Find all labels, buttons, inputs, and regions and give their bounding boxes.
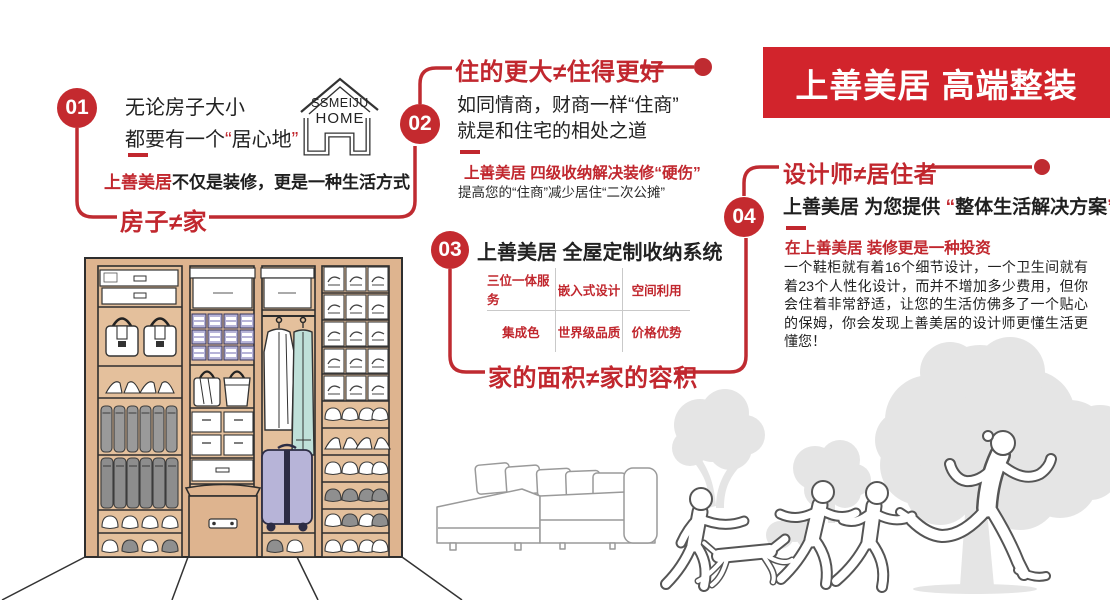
s1-red-dash — [128, 153, 148, 157]
step-number: 01 — [65, 96, 88, 120]
grid-cell: 世界级品质 — [555, 310, 623, 352]
s1-tagline: 上善美居不仅是装修，更是一种生活方式 — [104, 168, 410, 193]
logo-line2: HOME — [316, 110, 365, 127]
logo-line1: SSMEIJU — [311, 96, 369, 110]
s2-heading: 住的更大≠住得更好 — [455, 52, 665, 87]
s4-red-dash — [786, 226, 806, 230]
s2-line1: 如同情商，财商一样“住商” — [457, 93, 679, 119]
step-circle-01: 01 — [57, 88, 97, 128]
grid-cell: 价格优势 — [622, 310, 690, 352]
open-quote: “ — [225, 129, 232, 151]
s4-intro: 上善美居 为您提供 “整体生活解决方案” — [783, 192, 1110, 219]
step-circle-03: 03 — [431, 231, 469, 269]
s4-sub-red: 在上善美居 装修更是一种投资 — [785, 236, 991, 258]
s1-line1: 无论房子大小 — [125, 92, 298, 124]
step-circle-02: 02 — [400, 104, 440, 144]
s2-body: 如同情商，财商一样“住商” 就是和住宅的相处之道 — [457, 93, 679, 144]
s4-heading: 设计师≠居住者 — [783, 155, 937, 189]
s3-heading: 家的面积≠家的容积 — [488, 358, 698, 393]
step-number: 02 — [408, 112, 431, 136]
s1-line2: 都要有一个“居心地” — [125, 124, 298, 156]
s1-intro-text: 无论房子大小 都要有一个“居心地” — [125, 92, 298, 156]
s2-red-dash — [460, 150, 480, 154]
s3-feature-grid: 三位一体服务 嵌入式设计 空间利用 集成色 世界级品质 价格优势 — [487, 268, 690, 352]
s1-heading: 房子≠家 — [120, 202, 207, 237]
step-circle-04: 04 — [724, 197, 764, 237]
s2-sub-red: 上善美居 四级收纳解决装修“硬伤” — [464, 161, 701, 183]
grid-cell: 集成色 — [487, 310, 555, 352]
floor-lines — [2, 557, 462, 600]
close-quote: ” — [292, 129, 299, 151]
s4-body-paragraph: 一个鞋柜就有着16个细节设计，一个卫生间就有着23个人性化设计，而并不增加多少费… — [784, 258, 1088, 351]
sofa-illustration — [437, 463, 657, 550]
wardrobe-illustration — [2, 258, 462, 600]
step-number: 03 — [438, 238, 461, 262]
step-number: 04 — [732, 205, 755, 229]
s3-title: 上善美居 全屋定制收纳系统 — [477, 236, 723, 265]
grid-cell: 嵌入式设计 — [555, 268, 623, 310]
line-end-dot — [694, 58, 712, 76]
grid-cell: 空间利用 — [622, 268, 690, 310]
line-end-dot — [1034, 159, 1050, 175]
s2-sub-black: 提高您的“住商”减少居住“二次公摊” — [458, 181, 665, 201]
s2-line2: 就是和住宅的相处之道 — [457, 119, 679, 145]
open-quote: “ — [946, 197, 956, 218]
grid-cell: 三位一体服务 — [487, 268, 555, 310]
banner-title: 上善美居 高端整装 — [763, 47, 1110, 118]
house-logo-icon: SSMEIJU HOME — [301, 79, 378, 153]
poster-canvas: SSMEIJU HOME 上善美居 高端整装 01 02 03 04 无论房子大… — [0, 0, 1110, 600]
